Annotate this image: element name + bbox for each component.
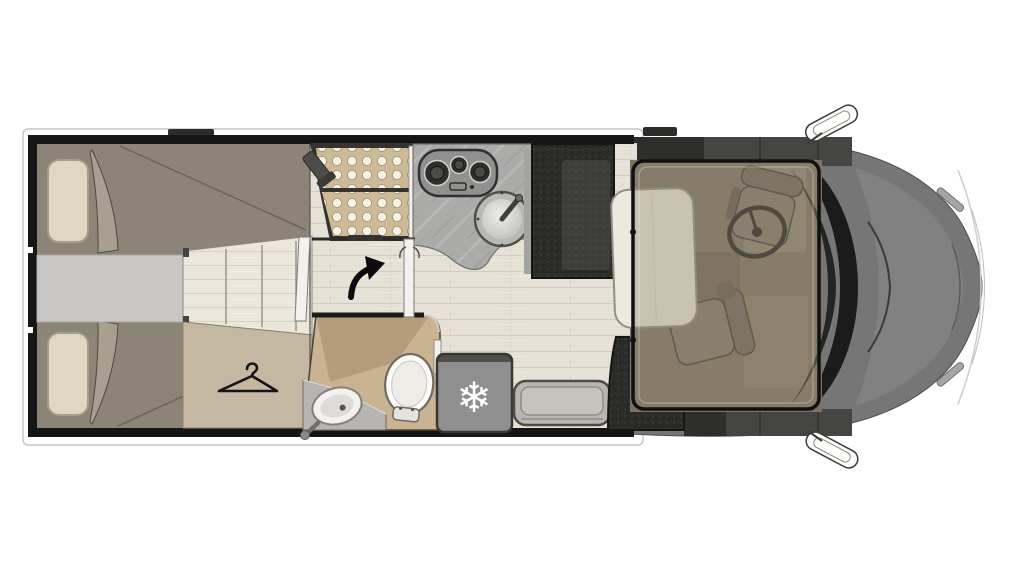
drawer-unit <box>183 236 312 335</box>
drawer-cap <box>183 248 189 257</box>
wall-rear <box>28 135 37 437</box>
bed-latch <box>630 337 636 343</box>
floorplan-canvas: ❄ <box>0 0 1024 576</box>
twin-beds <box>37 144 312 428</box>
basin-faucet-knob <box>301 431 310 440</box>
stove-icon <box>419 150 497 196</box>
wall-notch <box>27 247 33 253</box>
wall-top <box>28 135 634 144</box>
wardrobe-area <box>183 322 312 428</box>
dinette-bench-rear-facing <box>524 144 614 278</box>
refrigerator: ❄ <box>437 354 512 432</box>
shower-dots <box>322 192 409 236</box>
bench-side-panel <box>524 150 532 274</box>
pillow-bottom-bed <box>48 333 88 415</box>
drop-down-bed <box>630 161 819 409</box>
roof-vent <box>168 129 214 136</box>
step-inner <box>521 387 603 415</box>
washroom <box>301 315 442 440</box>
wall-notch <box>27 327 33 333</box>
bench-cushion <box>562 160 610 270</box>
partition-door-right <box>404 239 414 317</box>
sink-icon <box>475 192 529 247</box>
door-rail-bracket <box>348 235 382 241</box>
roof-vent <box>643 127 677 136</box>
cab-roof-band-dark <box>684 409 726 436</box>
drop-down-bed-frame <box>633 161 819 409</box>
entry-step <box>514 381 610 425</box>
snowflake-icon: ❄ <box>456 373 491 422</box>
pillow-top-bed <box>48 160 88 242</box>
center-aisle-step <box>37 255 183 322</box>
bed-latch <box>630 229 636 235</box>
floorplan-svg: ❄ <box>0 0 1024 576</box>
